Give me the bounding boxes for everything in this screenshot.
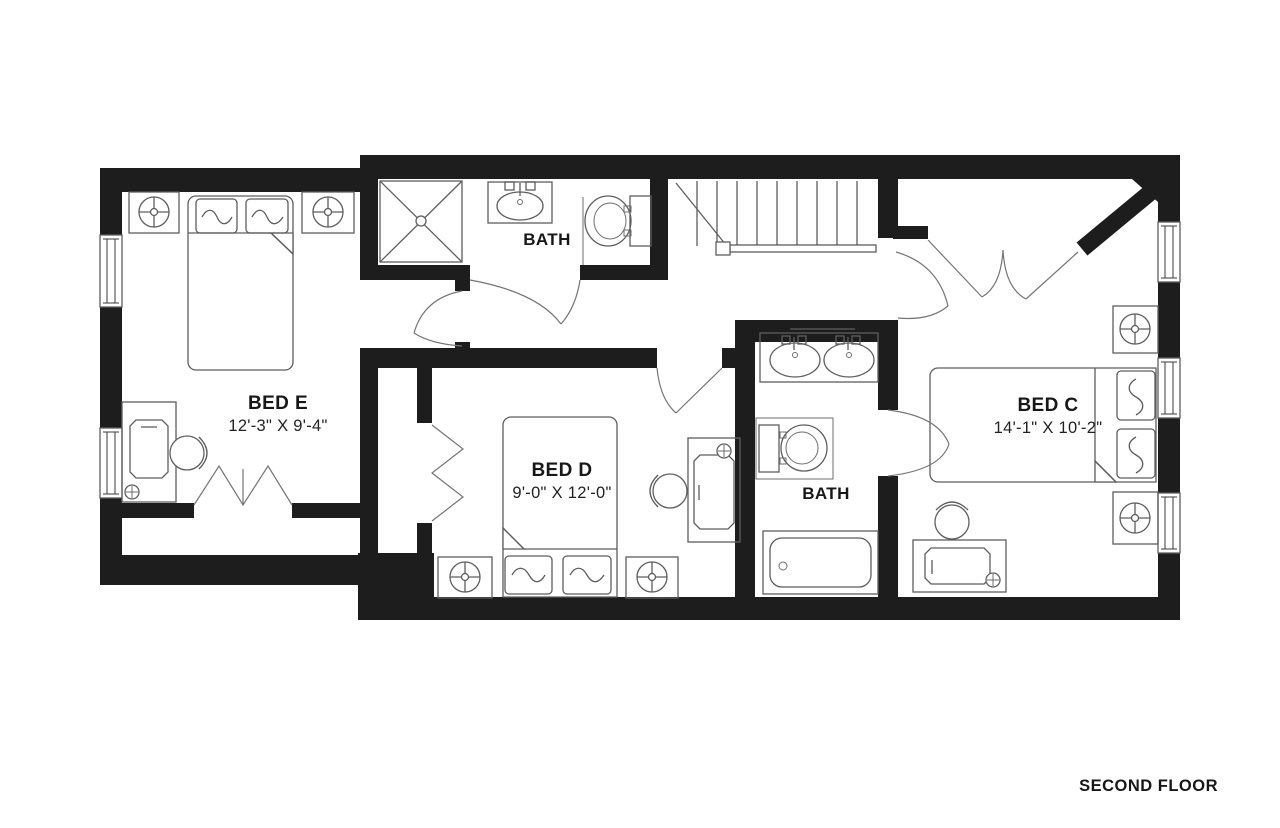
window-right-1 bbox=[1158, 222, 1180, 282]
toilet bbox=[585, 196, 651, 246]
bath-top-fixtures bbox=[380, 181, 651, 265]
wall-stub-bed-c-doors bbox=[893, 226, 928, 239]
toilet bbox=[756, 418, 833, 479]
toilet-tank bbox=[759, 425, 779, 472]
door-jamb-bed-e-upper bbox=[455, 265, 470, 291]
nightstand-with-lamp bbox=[302, 192, 354, 233]
pillow bbox=[563, 556, 611, 594]
bed bbox=[188, 196, 293, 370]
bed-e-dimensions: 12'-3" X 9'-4" bbox=[228, 417, 327, 435]
wall-bed-e-closet-left bbox=[122, 503, 194, 518]
bed-e-label: BED E bbox=[248, 393, 308, 414]
wall-bath-mid-east-upper bbox=[878, 320, 898, 410]
desk-lamp bbox=[986, 573, 1000, 587]
walls bbox=[100, 155, 1180, 620]
bifold-closet-doors bbox=[194, 466, 292, 505]
newel-post bbox=[716, 242, 730, 255]
vanity-sink bbox=[488, 182, 552, 223]
wall-bath-top-south-left bbox=[362, 265, 470, 280]
nightstand-with-lamp bbox=[1113, 492, 1158, 544]
faucet-handle bbox=[526, 182, 535, 190]
door-bed-d bbox=[657, 368, 722, 413]
wall-bath-mid-west bbox=[735, 320, 755, 597]
wall-stairwell-west bbox=[650, 179, 668, 280]
wall-diagonal-bed-c bbox=[1082, 191, 1152, 249]
pillow bbox=[246, 199, 288, 233]
wall-bottom-main bbox=[432, 597, 1180, 620]
door-bath-mid bbox=[888, 410, 949, 476]
wall-left bbox=[100, 168, 122, 585]
pillow bbox=[196, 199, 237, 233]
double-doors-bed-c bbox=[928, 240, 1078, 299]
window-left-1 bbox=[100, 235, 122, 307]
window-right-3 bbox=[1158, 493, 1180, 553]
desk-lamp bbox=[125, 485, 139, 499]
wall-bed-d-north bbox=[378, 348, 657, 368]
double-doors-bath-top bbox=[470, 280, 580, 324]
wall-bath-mid-east-lower bbox=[878, 476, 898, 597]
window-right-2 bbox=[1158, 358, 1180, 418]
desk-chair bbox=[935, 502, 969, 539]
stair-handrail bbox=[730, 245, 876, 252]
bifold-closet-doors bbox=[432, 425, 463, 521]
wall-bed-e-east-upper bbox=[360, 155, 378, 280]
nightstand-with-lamp bbox=[438, 557, 492, 598]
bath-mid-label: BATH bbox=[802, 484, 850, 503]
pillow bbox=[505, 556, 552, 594]
bed-c-label: BED C bbox=[1017, 395, 1078, 416]
wall-bottom-left bbox=[100, 555, 362, 585]
floor-plan-page: BED E 12'-3" X 9'-4" BED D 9'-0" X 12'-0… bbox=[0, 0, 1280, 828]
bath-top-label: BATH bbox=[523, 230, 571, 249]
floor-title: SECOND FLOOR bbox=[1079, 777, 1218, 795]
door-hall-to-bed-c bbox=[896, 252, 948, 319]
floor-plan-drawing: BED E 12'-3" X 9'-4" BED D 9'-0" X 12'-0… bbox=[0, 0, 1280, 828]
bed-d-furniture bbox=[432, 417, 740, 598]
bed-d-dimensions: 9'-0" X 12'-0" bbox=[512, 484, 611, 502]
toilet-tank bbox=[630, 196, 651, 246]
staircase bbox=[676, 181, 876, 255]
wall-bed-d-closet-upper bbox=[417, 368, 432, 423]
bath-mid-fixtures bbox=[756, 329, 878, 594]
pillow bbox=[1117, 429, 1155, 478]
desk bbox=[688, 438, 740, 542]
wall-bed-d-closet-lower bbox=[417, 523, 432, 555]
nightstand-with-lamp bbox=[129, 192, 179, 233]
door-bed-e bbox=[414, 291, 462, 346]
window-left-2 bbox=[100, 428, 122, 498]
bed-c-dimensions: 14'-1" X 10'-2" bbox=[994, 419, 1103, 437]
bed bbox=[503, 417, 617, 597]
desk-lamp bbox=[717, 444, 731, 458]
desk-chair bbox=[170, 436, 207, 470]
bathtub bbox=[763, 531, 878, 594]
bed-e-furniture bbox=[122, 192, 354, 505]
bed-d-label: BED D bbox=[531, 460, 592, 481]
stair-direction-line bbox=[676, 183, 726, 245]
desk-chair bbox=[650, 474, 687, 508]
wall-bed-e-closet-right bbox=[292, 503, 362, 518]
shower bbox=[380, 181, 462, 262]
pillow bbox=[1117, 371, 1155, 420]
wall-top-bed-e bbox=[100, 168, 362, 192]
faucet-handle bbox=[505, 182, 514, 190]
wall-top-main bbox=[362, 155, 1132, 179]
bed-c-furniture bbox=[913, 306, 1158, 592]
tub-faucet bbox=[779, 562, 787, 570]
nightstand-with-lamp bbox=[1113, 306, 1158, 353]
wall-bed-e-east-lower bbox=[360, 348, 378, 585]
shower-drain bbox=[416, 216, 426, 226]
nightstand-with-lamp bbox=[626, 557, 678, 598]
